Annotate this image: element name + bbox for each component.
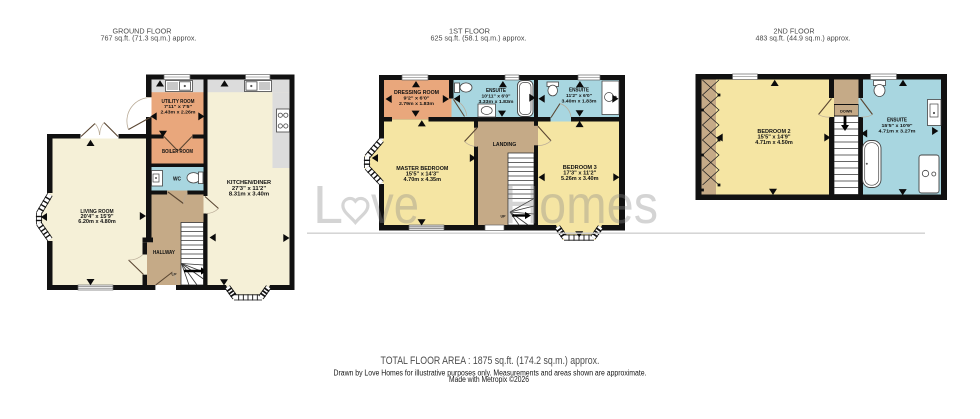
svg-text:625 sq.ft. (58.1 sq.m.) approx: 625 sq.ft. (58.1 sq.m.) approx. bbox=[431, 33, 527, 42]
svg-text:BOILER ROOM: BOILER ROOM bbox=[162, 149, 193, 155]
svg-text:2.79m x 1.83m: 2.79m x 1.83m bbox=[399, 101, 434, 106]
svg-text:4.71m x 4.50m: 4.71m x 4.50m bbox=[755, 140, 793, 146]
svg-text:DOWN: DOWN bbox=[840, 109, 853, 113]
svg-text:HALLWAY: HALLWAY bbox=[153, 250, 175, 256]
svg-text:L: L bbox=[313, 175, 343, 235]
svg-text:767 sq.ft. (71.3 sq.m.) approx: 767 sq.ft. (71.3 sq.m.) approx. bbox=[101, 33, 197, 42]
svg-text:Made with Metropix ©2026: Made with Metropix ©2026 bbox=[449, 375, 530, 384]
svg-text:6.20m x 4.80m: 6.20m x 4.80m bbox=[78, 219, 116, 225]
svg-text:WC: WC bbox=[173, 177, 181, 183]
svg-text:Homes: Homes bbox=[504, 175, 658, 235]
svg-text:483 sq.ft. (44.9 sq.m.) approx: 483 sq.ft. (44.9 sq.m.) approx. bbox=[756, 33, 851, 42]
svg-text:3.33m x 1.83m: 3.33m x 1.83m bbox=[479, 99, 514, 104]
svg-text:4.71m x 3.27m: 4.71m x 3.27m bbox=[879, 129, 916, 134]
svg-text:9'2" x 6'0": 9'2" x 6'0" bbox=[404, 96, 430, 101]
svg-text:11'2" x 6'0": 11'2" x 6'0" bbox=[566, 93, 592, 98]
svg-text:TOTAL FLOOR AREA : 1875 sq.ft.: TOTAL FLOOR AREA : 1875 sq.ft. (174.2 sq… bbox=[381, 355, 600, 367]
svg-text:8.31m x 3.40m: 8.31m x 3.40m bbox=[229, 191, 270, 197]
svg-text:2.43m x 2.26m: 2.43m x 2.26m bbox=[161, 109, 196, 114]
svg-text:LANDING: LANDING bbox=[493, 142, 517, 148]
svg-text:3.40m x 1.83m: 3.40m x 1.83m bbox=[562, 98, 597, 103]
svg-text:ve: ve bbox=[371, 175, 419, 235]
svg-text:15'5" x 10'9": 15'5" x 10'9" bbox=[882, 123, 913, 128]
svg-text:10'11" x 6'0": 10'11" x 6'0" bbox=[482, 94, 511, 99]
